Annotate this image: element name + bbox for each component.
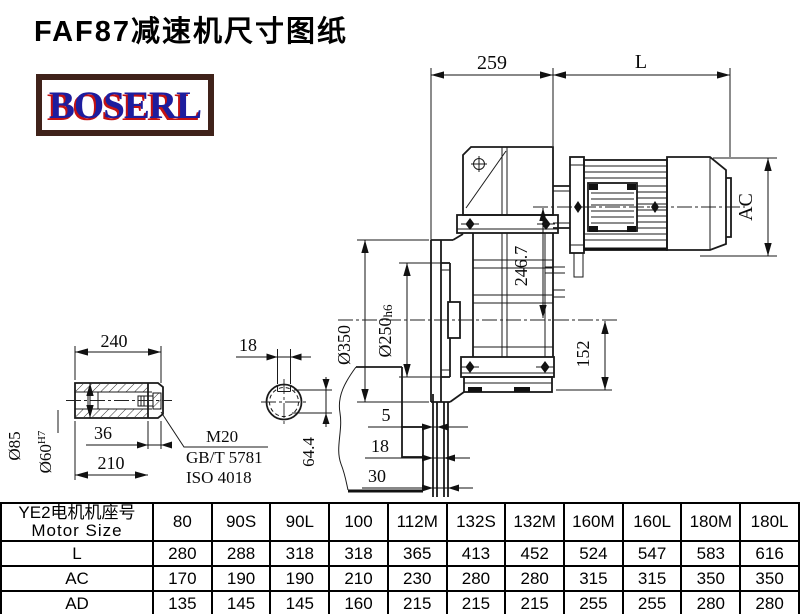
table-cell: 280 xyxy=(681,591,740,614)
row-label: L xyxy=(1,541,153,566)
col-header: 180L xyxy=(740,503,799,541)
dim-64-4: 64.4 xyxy=(299,437,318,467)
dim-36: 36 xyxy=(94,423,112,443)
dim-dia350: Ø350 xyxy=(334,325,354,365)
table-row-L: L 280 288 318 318 365 413 452 524 547 58… xyxy=(1,541,799,566)
technical-drawing: 240 36 210 Ø85 Ø60H7 M20 GB/T 5781 xyxy=(0,0,800,505)
table-cell: 215 xyxy=(388,591,447,614)
table-cell: 255 xyxy=(623,591,682,614)
dim-259: 259 xyxy=(477,52,507,74)
dim-152: 152 xyxy=(573,341,593,368)
dim-18: 18 xyxy=(371,436,389,456)
table-cell: 350 xyxy=(681,566,740,591)
col-header: 100 xyxy=(329,503,388,541)
table-cell: 210 xyxy=(329,566,388,591)
table-cell: 452 xyxy=(505,541,564,566)
table-row-AC: AC 170 190 190 210 230 280 280 315 315 3… xyxy=(1,566,799,591)
table-cell: 145 xyxy=(270,591,329,614)
table-cell: 288 xyxy=(212,541,271,566)
col-header: 160M xyxy=(564,503,623,541)
table-cell: 190 xyxy=(270,566,329,591)
dim-5: 5 xyxy=(382,405,391,425)
motor-size-header-cn: YE2电机机座号 xyxy=(2,504,152,522)
col-header: 132S xyxy=(447,503,506,541)
table-cell: 160 xyxy=(329,591,388,614)
table-cell: 315 xyxy=(623,566,682,591)
table-cell: 318 xyxy=(329,541,388,566)
col-header: 160L xyxy=(623,503,682,541)
dim-246-7: 246.7 xyxy=(511,246,531,287)
table-cell: 318 xyxy=(270,541,329,566)
dim-dia60: Ø60H7 xyxy=(36,430,55,473)
table-cell: 215 xyxy=(505,591,564,614)
dim-30: 30 xyxy=(368,466,386,486)
table-cell: 583 xyxy=(681,541,740,566)
main-dimensions: Ø350 Ø250h6 246.7 152 AC xyxy=(334,158,777,402)
table-cell: 524 xyxy=(564,541,623,566)
page: FAF87减速机尺寸图纸 BOSERL xyxy=(0,0,800,614)
motor xyxy=(570,157,731,277)
table-cell: 135 xyxy=(153,591,212,614)
table-cell: 315 xyxy=(564,566,623,591)
motor-size-table: YE2电机机座号 Motor Size 80 90S 90L 100 112M … xyxy=(0,502,800,614)
bottom-offset-dimensions: 5 18 30 xyxy=(362,394,473,497)
table-cell: 280 xyxy=(740,591,799,614)
dim-key-18: 18 xyxy=(239,335,257,355)
standard-gb: GB/T 5781 xyxy=(186,448,263,467)
table-cell: 547 xyxy=(623,541,682,566)
col-header: 180M xyxy=(681,503,740,541)
table-cell: 280 xyxy=(505,566,564,591)
col-header: 132M xyxy=(505,503,564,541)
dim-dia85: Ø85 xyxy=(5,431,24,460)
motor-size-header-en: Motor Size xyxy=(2,522,152,540)
dim-L: L xyxy=(635,51,647,73)
table-cell: 280 xyxy=(153,541,212,566)
row-label: AD xyxy=(1,591,153,614)
col-header: 90L xyxy=(270,503,329,541)
thread-spec: M20 xyxy=(206,427,238,446)
table-cell: 280 xyxy=(447,566,506,591)
table-cell: 170 xyxy=(153,566,212,591)
table-cell: 255 xyxy=(564,591,623,614)
standard-iso: ISO 4018 xyxy=(186,468,252,487)
table-cell: 365 xyxy=(388,541,447,566)
motor-size-header: YE2电机机座号 Motor Size xyxy=(1,503,153,541)
hollow-shaft-view: 240 36 210 Ø85 Ø60H7 M20 GB/T 5781 xyxy=(5,331,268,487)
table-cell: 413 xyxy=(447,541,506,566)
table-header-row: YE2电机机座号 Motor Size 80 90S 90L 100 112M … xyxy=(1,503,799,541)
top-dimensions: 259 L xyxy=(431,51,730,240)
dim-240: 240 xyxy=(101,331,128,351)
table-cell: 190 xyxy=(212,566,271,591)
table-row-AD: AD 135 145 145 160 215 215 215 255 255 2… xyxy=(1,591,799,614)
table-cell: 215 xyxy=(447,591,506,614)
dim-dia250: Ø250h6 xyxy=(375,304,395,358)
row-label: AC xyxy=(1,566,153,591)
table-cell: 616 xyxy=(740,541,799,566)
table-cell: 145 xyxy=(212,591,271,614)
table-cell: 350 xyxy=(740,566,799,591)
dim-210: 210 xyxy=(98,453,125,473)
col-header: 112M xyxy=(388,503,447,541)
col-header: 90S xyxy=(212,503,271,541)
col-header: 80 xyxy=(153,503,212,541)
table-cell: 230 xyxy=(388,566,447,591)
